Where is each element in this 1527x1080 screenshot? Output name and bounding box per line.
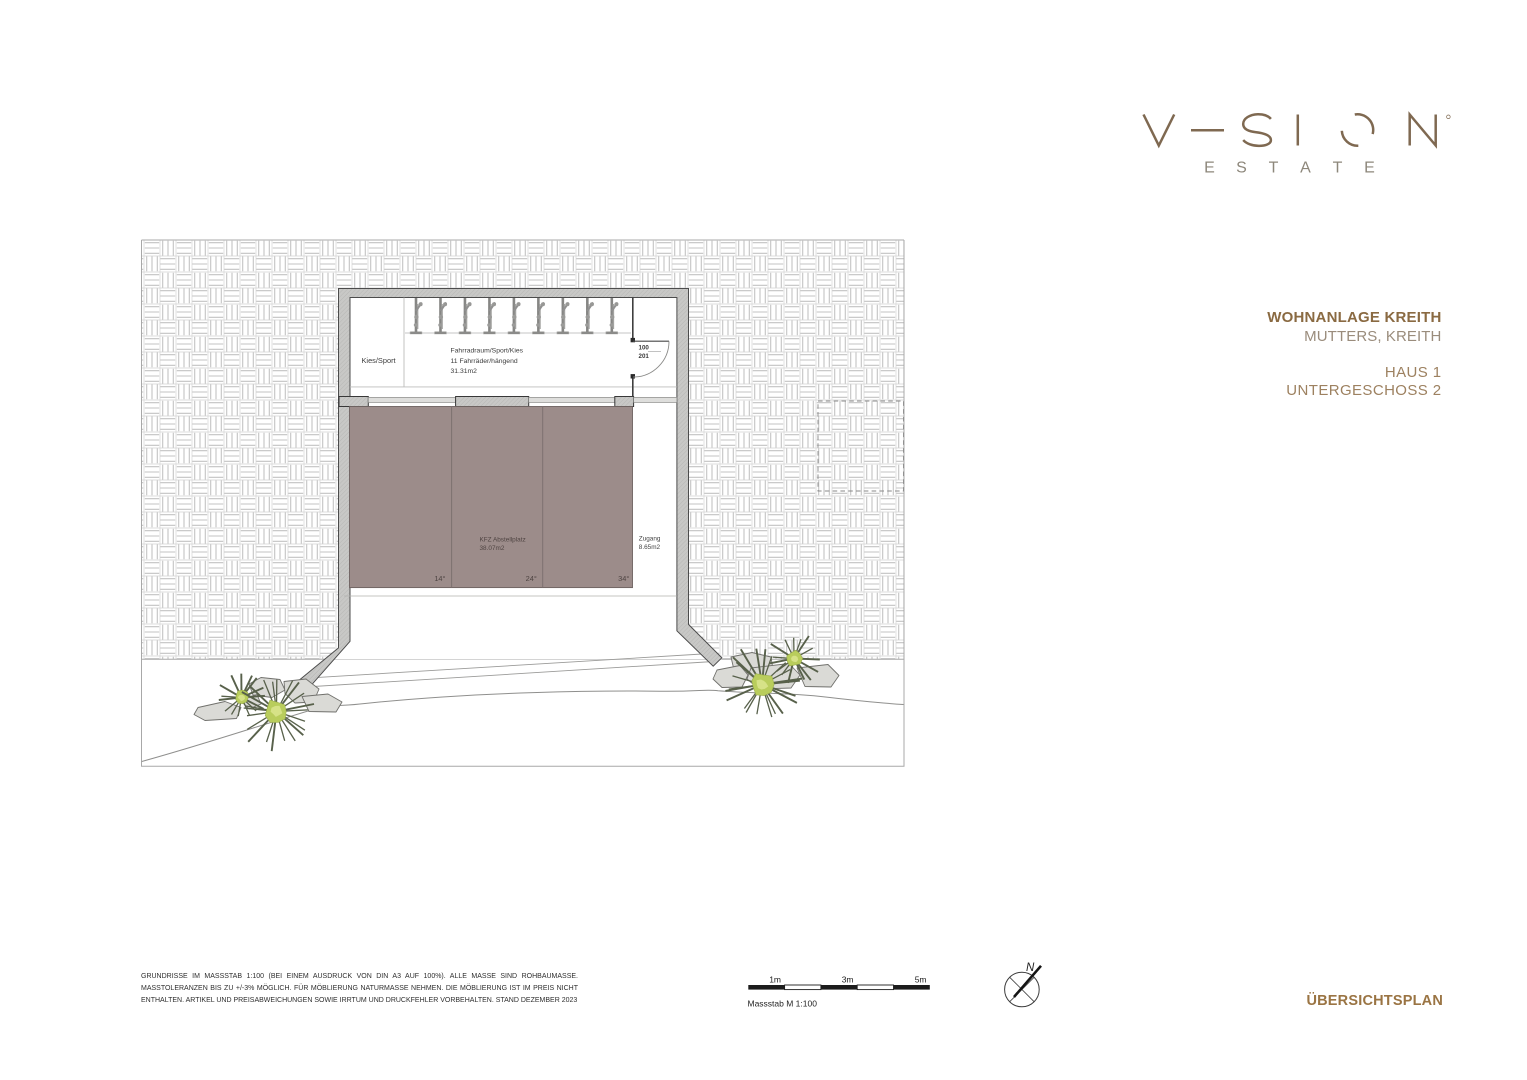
svg-text:E: E <box>1364 160 1375 177</box>
svg-text:Zugang: Zugang <box>639 536 661 543</box>
svg-text:11 Fahrräder/hängend: 11 Fahrräder/hängend <box>451 358 518 365</box>
svg-text:T: T <box>1269 160 1279 177</box>
svg-text:Fahrradraum/Sport/Kies: Fahrradraum/Sport/Kies <box>451 348 524 355</box>
svg-text:S: S <box>1236 160 1247 177</box>
svg-text:KFZ Abstellplatz: KFZ Abstellplatz <box>480 537 526 544</box>
svg-text:31.31m2: 31.31m2 <box>451 368 478 375</box>
svg-text:8.65m2: 8.65m2 <box>639 544 661 551</box>
svg-text:100: 100 <box>639 345 650 352</box>
svg-text:N: N <box>1026 962 1035 974</box>
svg-text:T: T <box>1333 160 1343 177</box>
svg-text:1m: 1m <box>769 975 781 985</box>
svg-text:14°: 14° <box>434 574 445 583</box>
svg-text:Massstab M 1:100: Massstab M 1:100 <box>748 999 818 1009</box>
svg-text:34°: 34° <box>618 574 629 583</box>
svg-text:38.07m2: 38.07m2 <box>480 545 505 552</box>
svg-text:Kies/Sport: Kies/Sport <box>362 356 396 365</box>
svg-text:A: A <box>1300 160 1311 177</box>
svg-text:5m: 5m <box>915 975 927 985</box>
svg-text:201: 201 <box>639 353 650 360</box>
svg-text:E: E <box>1204 160 1215 177</box>
svg-text:24°: 24° <box>526 574 537 583</box>
svg-text:3m: 3m <box>842 975 854 985</box>
